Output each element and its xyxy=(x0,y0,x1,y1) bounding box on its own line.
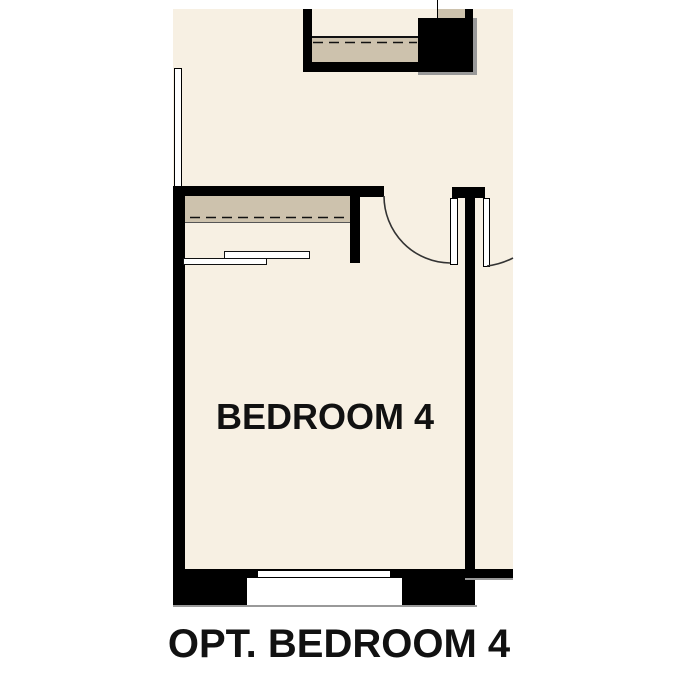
upper-closet-solid-block xyxy=(418,18,473,72)
upper-closet-shelf xyxy=(312,38,418,63)
closet-wall-right xyxy=(350,186,360,263)
bottom-right-wall-shadow xyxy=(465,578,513,580)
door-jamb-right xyxy=(483,198,491,268)
upper-closet-cap-line xyxy=(437,0,439,18)
room-label: BEDROOM 4 xyxy=(185,398,465,436)
closet-shelf xyxy=(185,196,350,223)
floor-plan: BEDROOM 4 OPT. BEDROOM 4 xyxy=(0,0,687,687)
wall-bottom-right-thin xyxy=(465,569,513,578)
upper-closet-cap-shelf xyxy=(437,9,465,18)
plan-caption: OPT. BEDROOM 4 xyxy=(161,623,517,665)
bypass-door-lower xyxy=(183,258,267,266)
upper-closet-shadow-bottom xyxy=(418,72,477,75)
upper-closet-block-arm xyxy=(465,9,473,18)
left-window xyxy=(174,68,182,188)
upper-closet-shadow-right xyxy=(473,18,477,74)
bottom-window-sill xyxy=(247,578,402,607)
bedroom-wall-right xyxy=(465,197,475,578)
bedroom-wall-left xyxy=(173,186,185,605)
bottom-window-glass xyxy=(258,571,390,577)
door-jamb-left xyxy=(450,198,458,265)
door-header-right xyxy=(452,187,485,198)
floor-area xyxy=(173,9,513,569)
